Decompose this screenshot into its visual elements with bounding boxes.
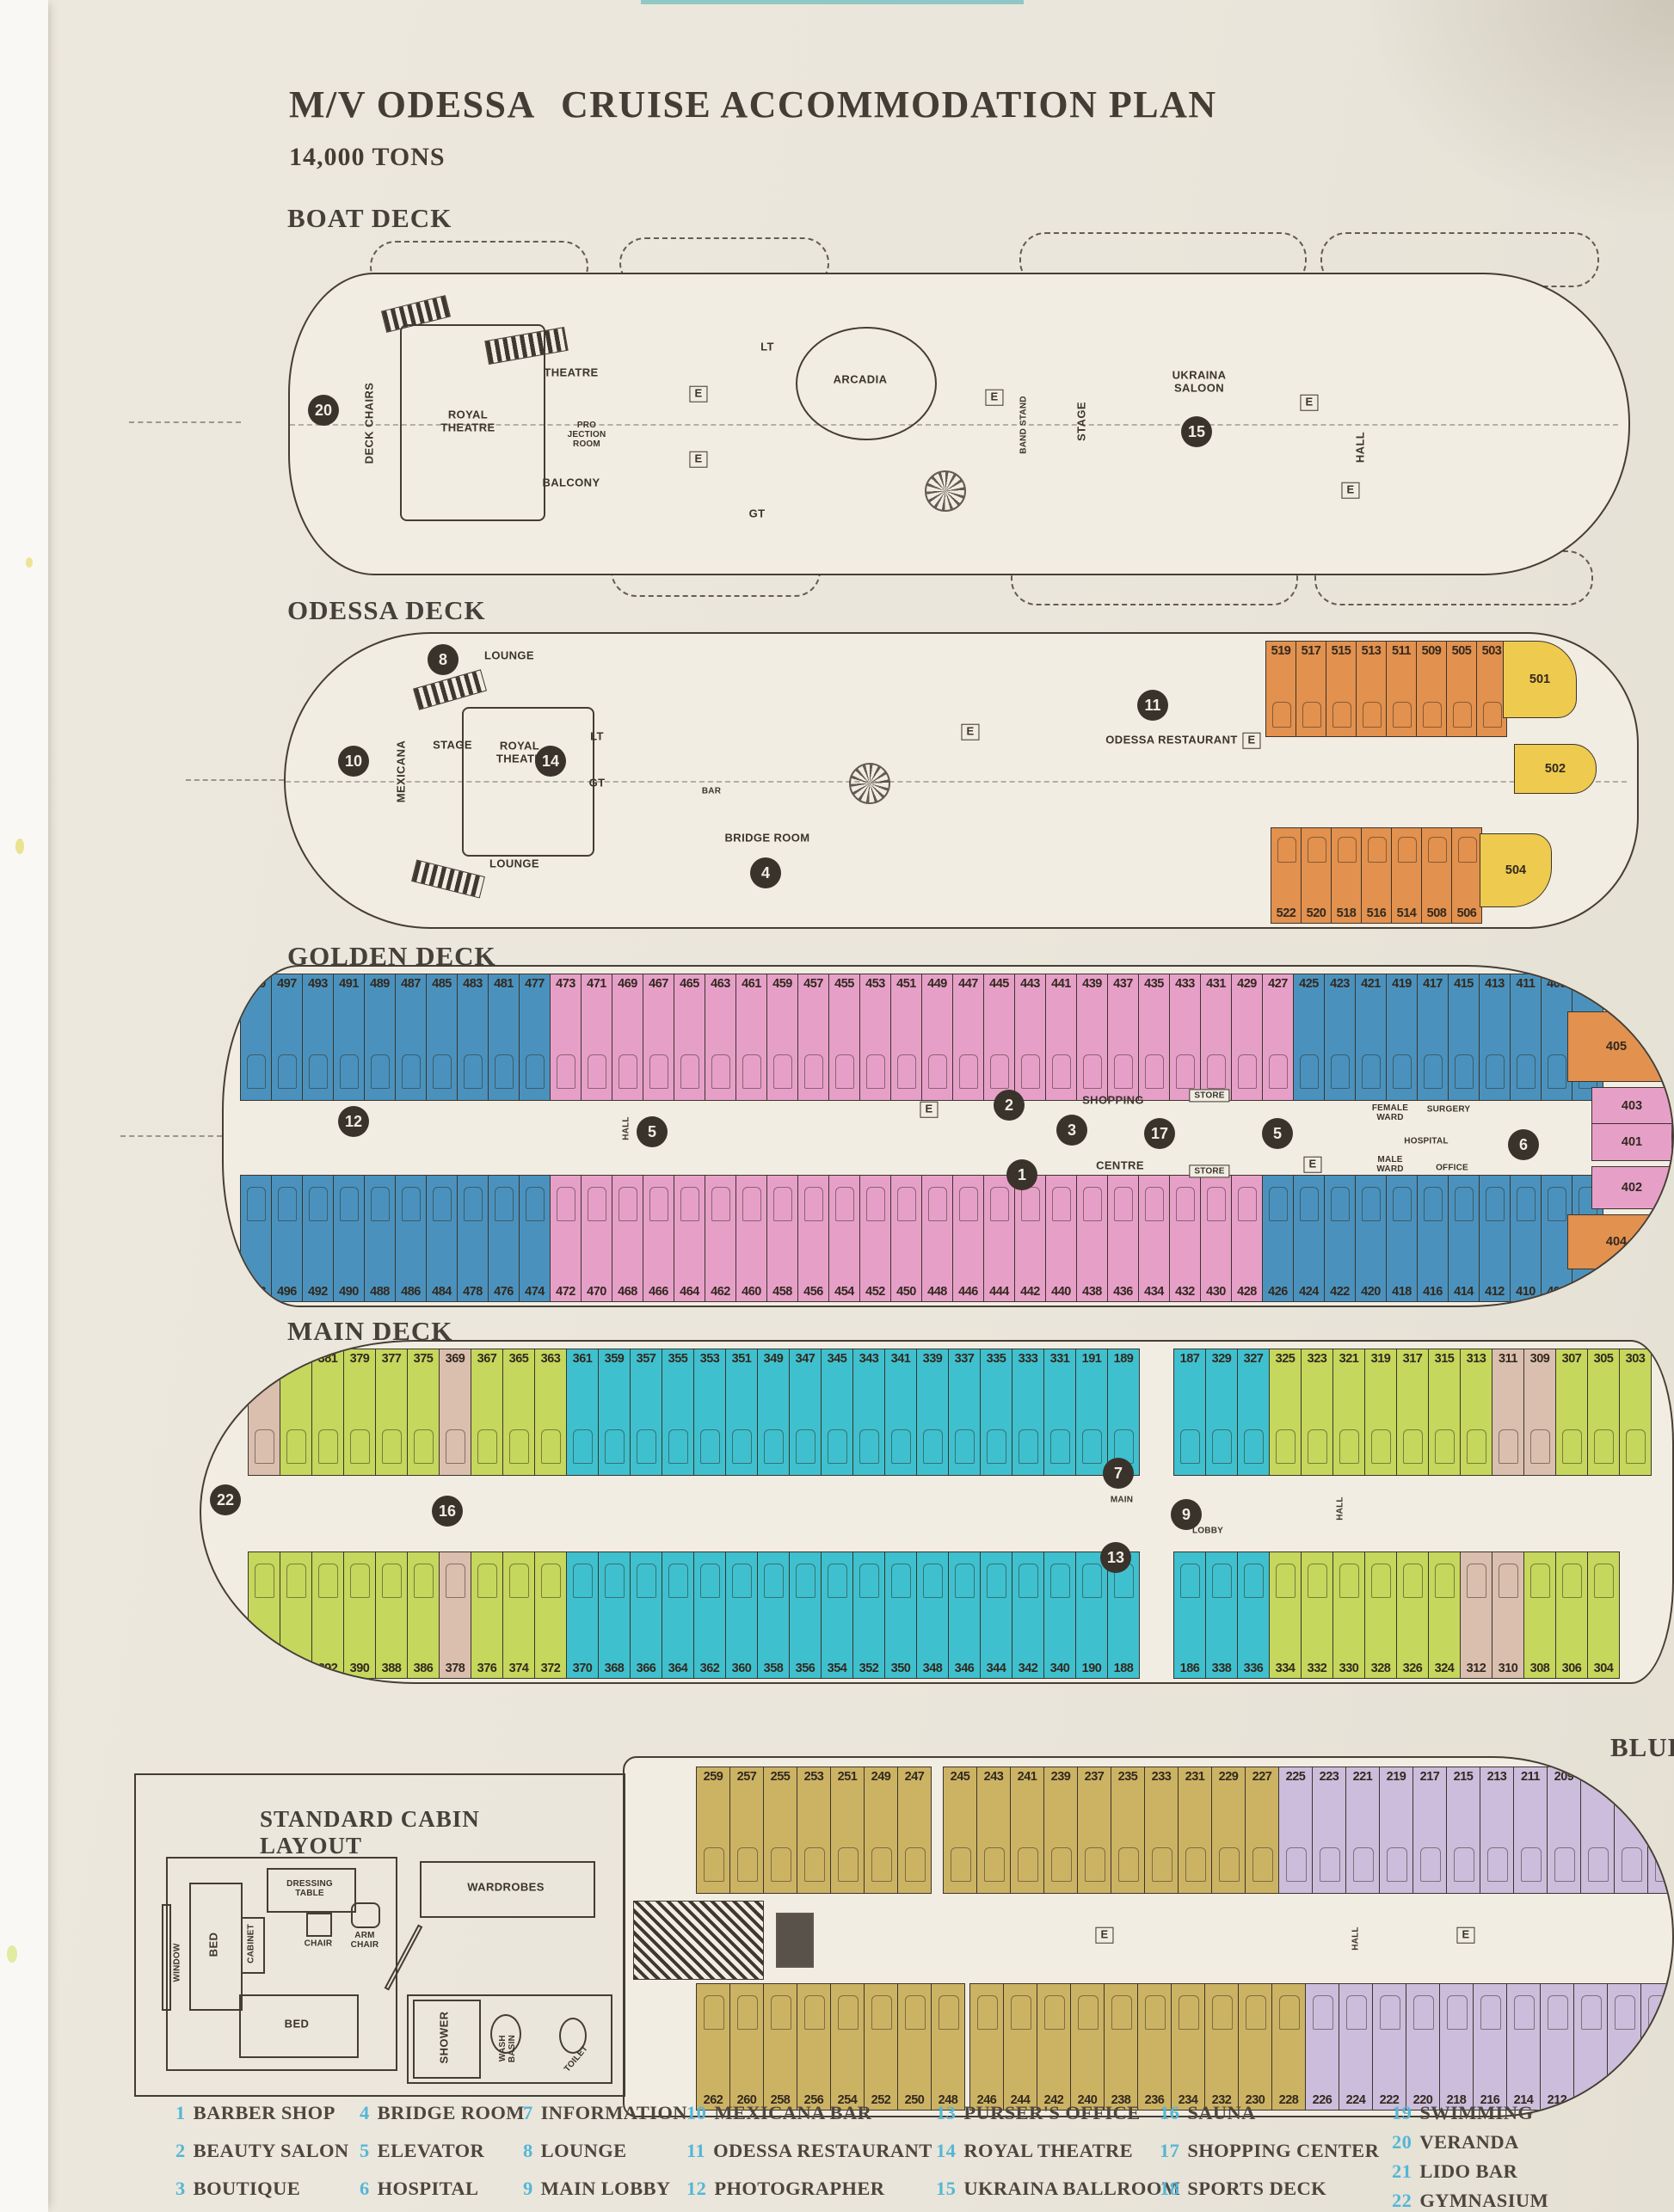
- chair-glyph: [306, 1913, 332, 1937]
- cabin-468: 468: [612, 1175, 643, 1302]
- cabin-205: 205: [1614, 1767, 1648, 1894]
- cabin-321: 321: [1332, 1349, 1365, 1476]
- legend-item-1: 1BARBER SHOP: [175, 2102, 349, 2124]
- plan-title: CRUISE ACCOMMODATION PLAN: [561, 83, 1217, 126]
- cabin-505: 505: [1446, 641, 1477, 737]
- paper-speck: [26, 557, 33, 568]
- cabin-306: 306: [1555, 1551, 1588, 1679]
- legend-number: 13: [936, 2102, 956, 2124]
- legend-number: 17: [1160, 2140, 1179, 2162]
- cabin-238: 238: [1104, 1983, 1138, 2111]
- cabin-463: 463: [705, 974, 736, 1101]
- cabin-506: 506: [1451, 827, 1482, 924]
- cabin-419: 419: [1386, 974, 1418, 1101]
- cabin-212: 212: [1540, 1983, 1574, 2111]
- cabin-490: 490: [333, 1175, 365, 1302]
- cabin-257: 257: [729, 1767, 764, 1894]
- cabin-310: 310: [1492, 1551, 1524, 1679]
- cabin-416: 416: [1417, 1175, 1449, 1302]
- cabin-190: 190: [1075, 1551, 1108, 1679]
- cabin-307: 307: [1555, 1349, 1588, 1476]
- legend-item-6: 6HOSPITAL: [360, 2178, 525, 2200]
- legend: 1BARBER SHOP2BEAUTY SALON3BOUTIQUE 4BRID…: [169, 2102, 1669, 2210]
- legend-item-5: 5ELEVATOR: [360, 2140, 525, 2162]
- cabin-312: 312: [1460, 1551, 1492, 1679]
- shower-label: SHOWER: [439, 2012, 452, 2064]
- cabin-473: 473: [550, 974, 582, 1101]
- cabin-476: 476: [488, 1175, 520, 1302]
- legend-number: 15: [936, 2178, 956, 2200]
- cabin-378: 378: [439, 1551, 471, 1679]
- cabin-229: 229: [1211, 1767, 1246, 1894]
- legend-label: GYMNASIUM: [1419, 2190, 1548, 2212]
- legend-item-22: 22GYMNASIUM: [1392, 2190, 1548, 2212]
- legend-column: 16SAUNA17SHOPPING CENTER18SPORTS DECK: [1160, 2102, 1379, 2200]
- cabin-383: 383: [280, 1349, 312, 1476]
- arm-chair-glyph: [351, 1902, 380, 1928]
- stairs: [413, 669, 487, 710]
- cabin-422: 422: [1324, 1175, 1356, 1302]
- legend-item-8: 8LOUNGE: [523, 2140, 687, 2162]
- cabin-402: 402: [1591, 1166, 1672, 1209]
- cabin-225: 225: [1278, 1767, 1313, 1894]
- cabin-374: 374: [502, 1551, 535, 1679]
- cabin-381: 381: [311, 1349, 344, 1476]
- cabin-452: 452: [859, 1175, 891, 1302]
- cabin-216: 216: [1473, 1983, 1507, 2111]
- cabin-346: 346: [948, 1551, 981, 1679]
- cabin-388: 388: [375, 1551, 408, 1679]
- cabin-376: 376: [471, 1551, 503, 1679]
- cabin-208: 208: [1607, 1983, 1641, 2111]
- cabin-396: 396: [248, 1551, 280, 1679]
- cabin-379: 379: [343, 1349, 376, 1476]
- cabin-326: 326: [1396, 1551, 1429, 1679]
- cabin-223: 223: [1312, 1767, 1346, 1894]
- cabin-514: 514: [1391, 827, 1422, 924]
- legend-label: BEAUTY SALON: [194, 2140, 349, 2162]
- cabin-234: 234: [1171, 1983, 1205, 2111]
- legend-number: 14: [936, 2140, 956, 2162]
- cabin-317: 317: [1396, 1349, 1429, 1476]
- cabin-412: 412: [1479, 1175, 1511, 1302]
- cabin-488: 488: [364, 1175, 396, 1302]
- cabin-319: 319: [1364, 1349, 1397, 1476]
- cabin-437: 437: [1107, 974, 1139, 1101]
- cabin-474: 474: [519, 1175, 551, 1302]
- spiral-stair: [925, 470, 966, 512]
- cabin-243: 243: [976, 1767, 1011, 1894]
- cabin-340: 340: [1043, 1551, 1076, 1679]
- cabin-423: 423: [1324, 974, 1356, 1101]
- odessa-deck-title: ODESSA DECK: [287, 595, 486, 626]
- legend-label: SWIMMING: [1419, 2102, 1533, 2124]
- cabin-366: 366: [630, 1551, 662, 1679]
- cabin-362: 362: [693, 1551, 726, 1679]
- legend-number: 21: [1392, 2160, 1412, 2183]
- cabin-413: 413: [1479, 974, 1511, 1101]
- cabin-343: 343: [852, 1349, 885, 1476]
- bed-label: BED: [285, 2018, 310, 2031]
- cabin-327: 327: [1237, 1349, 1270, 1476]
- legend-number: 20: [1392, 2131, 1412, 2154]
- legend-number: 7: [523, 2102, 533, 2124]
- cabin-210: 210: [1573, 1983, 1608, 2111]
- legend-number: 19: [1392, 2102, 1412, 2124]
- cabin-253: 253: [797, 1767, 831, 1894]
- cabin-332: 332: [1301, 1551, 1333, 1679]
- cabin-309: 309: [1523, 1349, 1556, 1476]
- cabin-369: 369: [439, 1349, 471, 1476]
- cabin-247: 247: [897, 1767, 932, 1894]
- cabin-224: 224: [1339, 1983, 1373, 2111]
- cabin-481: 481: [488, 974, 520, 1101]
- cabin-219: 219: [1379, 1767, 1413, 1894]
- cabin-213: 213: [1480, 1767, 1514, 1894]
- cabin-464: 464: [674, 1175, 705, 1302]
- legend-label: BOUTIQUE: [194, 2178, 300, 2200]
- cabin-strip: 3963943923903883863783763743723703683663…: [249, 1551, 1620, 1679]
- cabin-449: 449: [921, 974, 953, 1101]
- cabin-509: 509: [1416, 641, 1447, 737]
- cabin-502: 502: [1514, 744, 1597, 794]
- cabin-217: 217: [1412, 1767, 1447, 1894]
- centerline-extension: [120, 1135, 222, 1137]
- legend-label: ELEVATOR: [378, 2140, 485, 2162]
- legend-item-19: 19SWIMMING: [1392, 2102, 1548, 2124]
- cabin-206: 206: [1640, 1983, 1674, 2111]
- cabin-436: 436: [1107, 1175, 1139, 1302]
- legend-number: 2: [175, 2140, 186, 2162]
- cabin-466: 466: [643, 1175, 674, 1302]
- cabin-447: 447: [952, 974, 984, 1101]
- cabin-375: 375: [407, 1349, 440, 1476]
- cabin-442: 442: [1014, 1175, 1046, 1302]
- legend-column: 1BARBER SHOP2BEAUTY SALON3BOUTIQUE: [175, 2102, 349, 2200]
- cabin-strip: 4984964924904884864844784764744724704684…: [241, 1175, 1603, 1302]
- cabin-403: 403: [1591, 1087, 1672, 1125]
- cabin-404: 404: [1567, 1214, 1665, 1269]
- cabin-489: 489: [364, 974, 396, 1101]
- legend-item-9: 9MAIN LOBBY: [523, 2178, 687, 2200]
- cabin-328: 328: [1364, 1551, 1397, 1679]
- stairs: [411, 859, 485, 898]
- legend-item-7: 7INFORMATION: [523, 2102, 687, 2124]
- window-label: WINDOW: [172, 1943, 182, 1982]
- cabin-323: 323: [1301, 1349, 1333, 1476]
- cabin-345: 345: [821, 1349, 853, 1476]
- cabin-191: 191: [1075, 1349, 1108, 1476]
- legend-label: ROYAL THEATRE: [963, 2140, 1133, 2162]
- cabin-strip: 2622602582562542522502482462442422402382…: [697, 1983, 1674, 2111]
- cabin-260: 260: [729, 1983, 764, 2111]
- cabin-435: 435: [1138, 974, 1170, 1101]
- cabin-220: 220: [1406, 1983, 1440, 2111]
- chair-label: CHAIR: [305, 1939, 333, 1948]
- cabin-313: 313: [1460, 1349, 1492, 1476]
- cabin-359: 359: [598, 1349, 631, 1476]
- scanned-deck-plan-page: M/V ODESSA CRUISE ACCOMMODATION PLAN 14,…: [0, 0, 1674, 2212]
- cabin-364: 364: [662, 1551, 694, 1679]
- cabin-strip: 4994974934914894874854834814774734714694…: [241, 974, 1603, 1101]
- cabin-218: 218: [1439, 1983, 1474, 2111]
- cabin-330: 330: [1332, 1551, 1365, 1679]
- cabin-339: 339: [916, 1349, 949, 1476]
- legend-label: HOSPITAL: [378, 2178, 479, 2200]
- cabin-226: 226: [1305, 1983, 1339, 2111]
- cabin-508: 508: [1421, 827, 1452, 924]
- cabin-444: 444: [983, 1175, 1015, 1302]
- legend-column: 13PURSER'S OFFICE14ROYAL THEATRE15UKRAIN…: [936, 2102, 1180, 2200]
- cabin-451: 451: [890, 974, 922, 1101]
- strip-gap: [932, 1767, 944, 1894]
- cabin-467: 467: [643, 974, 674, 1101]
- cabin-443: 443: [1014, 974, 1046, 1101]
- cabin-335: 335: [980, 1349, 1012, 1476]
- cabin-233: 233: [1144, 1767, 1179, 1894]
- cabin-242: 242: [1037, 1983, 1071, 2111]
- cabin-227: 227: [1245, 1767, 1279, 1894]
- cabin-221: 221: [1345, 1767, 1380, 1894]
- cabin-427: 427: [1262, 974, 1294, 1101]
- cabin-203: 203: [1647, 1767, 1674, 1894]
- strip-gap: [1140, 1349, 1174, 1476]
- legend-item-15: 15UKRAINA BALLROOM: [936, 2178, 1180, 2200]
- legend-column: 4BRIDGE ROOM5ELEVATOR6HOSPITAL: [360, 2102, 525, 2200]
- cabin-511: 511: [1386, 641, 1417, 737]
- cabin-430: 430: [1200, 1175, 1232, 1302]
- cabin-344: 344: [980, 1551, 1012, 1679]
- cabin-492: 492: [302, 1175, 334, 1302]
- cabin-496: 496: [271, 1175, 303, 1302]
- legend-label: BRIDGE ROOM: [378, 2102, 525, 2124]
- cabin-440: 440: [1045, 1175, 1077, 1302]
- cabin-517: 517: [1296, 641, 1326, 737]
- tonnage-label: 14,000 TONS: [289, 143, 446, 172]
- cabin-501: 501: [1503, 641, 1577, 718]
- cabin-331: 331: [1043, 1349, 1076, 1476]
- blue-deck-hull: 2592572552532512492472452432412392372352…: [623, 1756, 1674, 2117]
- cabin-348: 348: [916, 1551, 949, 1679]
- golden-deck-plan: 4994974934914894874854834814774734714694…: [222, 965, 1674, 1307]
- cabin-504: 504: [1480, 833, 1552, 907]
- cabin-231: 231: [1178, 1767, 1212, 1894]
- cabin-230: 230: [1238, 1983, 1272, 2111]
- cabin-305: 305: [1587, 1349, 1620, 1476]
- cabin-429: 429: [1231, 974, 1263, 1101]
- legend-label: LOUNGE: [541, 2140, 627, 2162]
- arm-chair-label: ARM CHAIR: [351, 1931, 379, 1950]
- cabin-329: 329: [1205, 1349, 1238, 1476]
- legend-item-2: 2BEAUTY SALON: [175, 2140, 349, 2162]
- cabin-513: 513: [1356, 641, 1387, 737]
- legend-item-17: 17SHOPPING CENTER: [1160, 2140, 1379, 2162]
- cabin-438: 438: [1076, 1175, 1108, 1302]
- legend-label: LIDO BAR: [1419, 2160, 1517, 2183]
- cabin-405: 405: [1567, 1011, 1665, 1082]
- legend-number: 5: [360, 2140, 370, 2162]
- legend-item-16: 16SAUNA: [1160, 2102, 1379, 2124]
- machinery-block: [776, 1913, 814, 1968]
- cabin-462: 462: [705, 1175, 736, 1302]
- cabin-455: 455: [828, 974, 860, 1101]
- standard-cabin-layout-box: STANDARD CABIN LAYOUT WINDOW BED CABINET…: [134, 1773, 625, 2097]
- cabin-394: 394: [280, 1551, 312, 1679]
- cabin-445: 445: [983, 974, 1015, 1101]
- cabin-439: 439: [1076, 974, 1108, 1101]
- legend-label: SHOPPING CENTER: [1187, 2140, 1379, 2162]
- cabin-428: 428: [1231, 1175, 1263, 1302]
- cabin-426: 426: [1262, 1175, 1294, 1302]
- cabin-497: 497: [271, 974, 303, 1101]
- legend-label: PHOTOGRAPHER: [714, 2178, 884, 2200]
- cabin-254: 254: [830, 1983, 865, 2111]
- cabin-392: 392: [311, 1551, 344, 1679]
- cabin-249: 249: [864, 1767, 898, 1894]
- cabin-338: 338: [1205, 1551, 1238, 1679]
- legend-column: 19SWIMMING20VERANDA21LIDO BAR22GYMNASIUM: [1392, 2102, 1548, 2212]
- cabin-256: 256: [797, 1983, 831, 2111]
- legend-item-4: 4BRIDGE ROOM: [360, 2102, 525, 2124]
- legend-number: 16: [1160, 2102, 1179, 2124]
- cabin-352: 352: [852, 1551, 885, 1679]
- legend-label: VERANDA: [1419, 2131, 1518, 2154]
- cabin-186: 186: [1173, 1551, 1206, 1679]
- cabin-456: 456: [797, 1175, 829, 1302]
- boat-deck-plan: 2015DECK CHAIRSROYAL THEATRETHEATREPRO J…: [241, 225, 1634, 578]
- legend-item-20: 20VERANDA: [1392, 2131, 1548, 2154]
- cabin-498: 498: [240, 1175, 272, 1302]
- cabin-460: 460: [735, 1175, 767, 1302]
- cabin-strip: 519517515513511509505503: [1266, 641, 1507, 737]
- scan-top-edge: [641, 0, 1024, 4]
- machinery-casing: [633, 1901, 764, 1980]
- cabin-215: 215: [1446, 1767, 1480, 1894]
- cabin-strip: 2592572552532512492472452432412392372352…: [697, 1767, 1674, 1894]
- centerline-extension: [129, 421, 241, 423]
- cabin-465: 465: [674, 974, 705, 1101]
- cabin-245: 245: [943, 1767, 977, 1894]
- cabin-239: 239: [1043, 1767, 1078, 1894]
- cabin-418: 418: [1386, 1175, 1418, 1302]
- cabin-433: 433: [1169, 974, 1201, 1101]
- page-corner-shadow: [1313, 0, 1674, 258]
- legend-item-13: 13PURSER'S OFFICE: [936, 2102, 1180, 2124]
- legend-number: 12: [686, 2178, 706, 2200]
- cabin-259: 259: [696, 1767, 730, 1894]
- legend-number: 3: [175, 2178, 186, 2200]
- cabin-189: 189: [1107, 1349, 1140, 1476]
- cabin-367: 367: [471, 1349, 503, 1476]
- cabin-363: 363: [534, 1349, 567, 1476]
- cabin-336: 336: [1237, 1551, 1270, 1679]
- cabin-209: 209: [1547, 1767, 1581, 1894]
- cabin-356: 356: [789, 1551, 822, 1679]
- legend-item-14: 14ROYAL THEATRE: [936, 2140, 1180, 2162]
- cabin-350: 350: [884, 1551, 917, 1679]
- legend-item-11: 11ODESSA RESTAURANT: [686, 2140, 932, 2162]
- main-deck-plan: 3853833813793773753693673653633613593573…: [200, 1340, 1674, 1684]
- standard-cabin-title: STANDARD CABIN LAYOUT: [260, 1806, 502, 1859]
- cabin-516: 516: [1361, 827, 1392, 924]
- cabin-448: 448: [921, 1175, 953, 1302]
- cabin-337: 337: [948, 1349, 981, 1476]
- legend-label: BARBER SHOP: [194, 2102, 335, 2124]
- cabin-235: 235: [1111, 1767, 1145, 1894]
- cabin-386: 386: [407, 1551, 440, 1679]
- legend-label: ODESSA RESTAURANT: [713, 2140, 932, 2162]
- cabin-519: 519: [1265, 641, 1296, 737]
- legend-label: SPORTS DECK: [1187, 2178, 1326, 2200]
- cabin-358: 358: [757, 1551, 790, 1679]
- cabin-207: 207: [1580, 1767, 1615, 1894]
- legend-number: 1: [175, 2102, 186, 2124]
- legend-item-18: 18SPORTS DECK: [1160, 2178, 1379, 2200]
- paper-speck: [15, 839, 24, 854]
- cabin-341: 341: [884, 1349, 917, 1476]
- cabin-303: 303: [1619, 1349, 1652, 1476]
- cabin-411: 411: [1510, 974, 1542, 1101]
- cabin-421: 421: [1355, 974, 1387, 1101]
- cabin-strip: 522520518516514508506: [1271, 827, 1482, 924]
- cabin-425: 425: [1293, 974, 1325, 1101]
- legend-number: 9: [523, 2178, 533, 2200]
- cabin-222: 222: [1372, 1983, 1406, 2111]
- legend-number: 11: [686, 2140, 705, 2162]
- cabin-522: 522: [1271, 827, 1302, 924]
- odessa-deck-hull: 519517515513511509505503 522520518516514…: [284, 632, 1639, 929]
- legend-number: 4: [360, 2102, 370, 2124]
- cabin-487: 487: [395, 974, 427, 1101]
- cabin-355: 355: [662, 1349, 694, 1476]
- cabin-315: 315: [1428, 1349, 1461, 1476]
- cabin-486: 486: [395, 1175, 427, 1302]
- theatre-room: [462, 707, 594, 857]
- cabin-459: 459: [766, 974, 798, 1101]
- cabin-478: 478: [457, 1175, 489, 1302]
- cabin-477: 477: [519, 974, 551, 1101]
- legend-number: 10: [686, 2102, 706, 2124]
- cabin-258: 258: [763, 1983, 797, 2111]
- cabin-342: 342: [1012, 1551, 1044, 1679]
- cabin-410: 410: [1510, 1175, 1542, 1302]
- ship-name-title: M/V ODESSA: [289, 83, 536, 126]
- strip-gap: [1140, 1551, 1174, 1679]
- legend-number: 22: [1392, 2190, 1412, 2212]
- cabin-228: 228: [1271, 1983, 1306, 2111]
- cabin-353: 353: [693, 1349, 726, 1476]
- cabin-357: 357: [630, 1349, 662, 1476]
- legend-number: 18: [1160, 2178, 1179, 2200]
- cabin-390: 390: [343, 1551, 376, 1679]
- cabin-434: 434: [1138, 1175, 1170, 1302]
- cabin-424: 424: [1293, 1175, 1325, 1302]
- cabin-401: 401: [1591, 1123, 1672, 1161]
- blue-deck-plan: 2592572552532512492472452432412392372352…: [623, 1756, 1674, 2117]
- cabin-211: 211: [1513, 1767, 1548, 1894]
- cabin-361: 361: [566, 1349, 599, 1476]
- spiral-stair: [849, 763, 890, 804]
- cabin-262: 262: [696, 1983, 730, 2111]
- cabin-311: 311: [1492, 1349, 1524, 1476]
- cabin-515: 515: [1326, 641, 1357, 737]
- legend-column: 10MEXICANA BAR11ODESSA RESTAURANT12PHOTO…: [686, 2102, 932, 2200]
- cabin-365: 365: [502, 1349, 535, 1476]
- cabin-372: 372: [534, 1551, 567, 1679]
- cabin-377: 377: [375, 1349, 408, 1476]
- legend-column: 7INFORMATION8LOUNGE9MAIN LOBBY: [523, 2102, 687, 2200]
- cabin-237: 237: [1077, 1767, 1111, 1894]
